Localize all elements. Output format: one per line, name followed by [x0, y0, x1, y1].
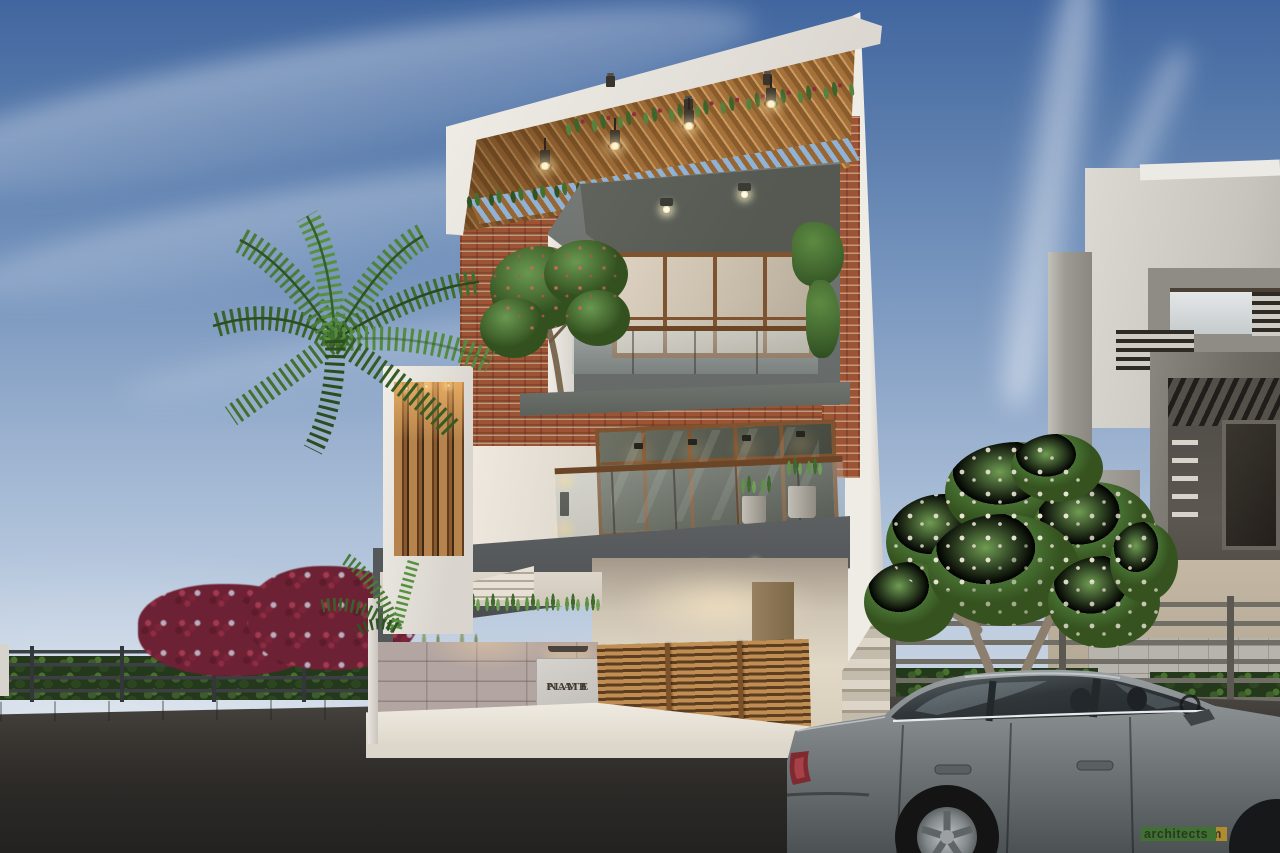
hanging-plant	[792, 222, 844, 286]
plant-pot	[788, 486, 816, 518]
facade-spot-light	[688, 439, 697, 445]
potted-plant	[784, 452, 822, 490]
fence-post	[120, 646, 124, 702]
porch-interior-door	[752, 582, 794, 644]
hanging-plant	[806, 280, 840, 358]
neighbour-window	[1222, 420, 1280, 550]
nameplate-light	[548, 646, 588, 652]
pendant-light	[684, 110, 694, 124]
railing-post	[611, 472, 616, 536]
architectural-render-scene: NAMB PLATE	[0, 0, 1280, 853]
window-transom	[617, 317, 809, 320]
roof-light	[606, 76, 615, 87]
neighbour-louver-panel	[1252, 292, 1280, 336]
facade-spot-light	[634, 443, 643, 449]
ceiling-downlight	[662, 205, 671, 214]
pendant-light	[540, 150, 550, 164]
name-plate-line2: PLATE	[546, 681, 589, 693]
facade-spot-light	[796, 431, 805, 437]
ceiling-downlight	[740, 190, 749, 199]
grey-sedan-car	[785, 665, 1280, 853]
small-palm-plant	[316, 546, 420, 646]
palm-tree	[185, 190, 505, 520]
pendant-light	[610, 130, 620, 144]
plant-pot	[742, 496, 766, 524]
watermark-suffix: architects	[1141, 827, 1216, 841]
fence-post	[30, 646, 34, 702]
facade-spot-light	[742, 435, 751, 441]
railing-post	[756, 331, 758, 374]
railing-post	[673, 469, 678, 533]
pendant-light	[766, 88, 776, 102]
gate-post	[0, 644, 9, 696]
neighbour-pergola-shadow	[1168, 378, 1280, 426]
railing-post	[694, 331, 696, 374]
